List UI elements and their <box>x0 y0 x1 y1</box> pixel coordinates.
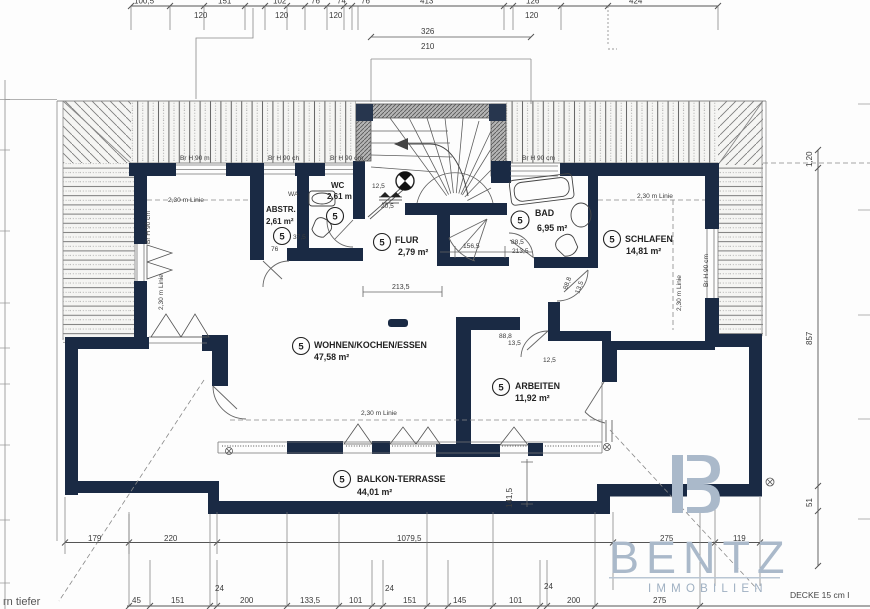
svg-text:5: 5 <box>279 232 285 243</box>
svg-text:179: 179 <box>88 534 102 543</box>
svg-text:FLUR: FLUR <box>395 235 419 245</box>
svg-text:220: 220 <box>164 534 178 543</box>
svg-text:WOHNEN/KOCHEN/ESSEN: WOHNEN/KOCHEN/ESSEN <box>314 340 427 350</box>
svg-text:1,20: 1,20 <box>805 151 814 167</box>
svg-text:141,5: 141,5 <box>505 487 514 508</box>
svg-text:200: 200 <box>240 596 254 605</box>
svg-text:SCHLAFEN: SCHLAFEN <box>625 234 673 244</box>
svg-text:BAD: BAD <box>535 208 554 218</box>
svg-text:BENTZ: BENTZ <box>609 532 792 583</box>
svg-text:2,61 m: 2,61 m <box>327 192 352 201</box>
svg-text:76: 76 <box>361 0 370 6</box>
svg-text:151: 151 <box>403 596 417 605</box>
svg-text:5: 5 <box>332 212 338 223</box>
svg-text:12,5: 12,5 <box>543 357 556 364</box>
svg-text:DECKE 15 cm I: DECKE 15 cm I <box>790 590 850 600</box>
svg-text:74: 74 <box>337 0 346 6</box>
svg-text:ABSTR.: ABSTR. <box>266 205 296 214</box>
svg-text:24: 24 <box>544 582 553 591</box>
svg-text:2,30 m Linie: 2,30 m Linie <box>158 274 165 310</box>
svg-text:102: 102 <box>273 0 287 6</box>
svg-text:88,5: 88,5 <box>511 239 524 246</box>
svg-text:120: 120 <box>329 11 343 20</box>
svg-text:210: 210 <box>421 42 435 51</box>
svg-text:5: 5 <box>609 235 615 246</box>
svg-text:120: 120 <box>275 11 289 20</box>
svg-text:2,30 m Linie: 2,30 m Linie <box>637 193 673 200</box>
svg-text:857: 857 <box>805 331 814 345</box>
svg-text:20,5: 20,5 <box>381 203 394 210</box>
svg-text:51: 51 <box>805 498 814 507</box>
svg-text:44,01 m²: 44,01 m² <box>357 487 392 497</box>
svg-text:5: 5 <box>498 383 504 394</box>
svg-text:100,5: 100,5 <box>134 0 155 6</box>
svg-text:76: 76 <box>271 246 279 253</box>
svg-text:126: 126 <box>526 0 540 6</box>
svg-text:13,5: 13,5 <box>508 340 521 347</box>
svg-text:213,5: 213,5 <box>392 284 410 291</box>
svg-text:Br H 90 cm: Br H 90 cm <box>145 211 152 244</box>
svg-text:326: 326 <box>421 27 435 36</box>
svg-text:120: 120 <box>194 11 208 20</box>
svg-text:WC: WC <box>331 181 345 190</box>
svg-text:133,5: 133,5 <box>300 596 321 605</box>
svg-text:213,5: 213,5 <box>512 248 529 255</box>
svg-text:413: 413 <box>420 0 434 6</box>
svg-text:2,30 m Linie: 2,30 m Linie <box>168 197 204 204</box>
svg-text:BALKON-TERRASSE: BALKON-TERRASSE <box>357 474 446 484</box>
svg-text:Br H 90 ch: Br H 90 ch <box>268 155 299 162</box>
svg-text:5: 5 <box>298 342 304 353</box>
svg-text:2,61 m²: 2,61 m² <box>266 217 294 226</box>
svg-text:120: 120 <box>525 11 539 20</box>
svg-text:37,5: 37,5 <box>293 234 306 241</box>
svg-text:424: 424 <box>629 0 643 6</box>
svg-text:2,30 m Linie: 2,30 m Linie <box>361 410 397 417</box>
svg-text:151: 151 <box>218 0 232 6</box>
svg-text:12,5: 12,5 <box>372 183 385 190</box>
svg-text:76: 76 <box>311 0 320 6</box>
svg-text:IMMOBILIEN: IMMOBILIEN <box>648 583 768 595</box>
svg-text:6,95 m²: 6,95 m² <box>537 223 567 233</box>
svg-text:5: 5 <box>379 238 385 249</box>
svg-text:275: 275 <box>653 596 667 605</box>
svg-text:5: 5 <box>517 216 523 227</box>
svg-text:1079,5: 1079,5 <box>397 534 422 543</box>
svg-text:88,8: 88,8 <box>499 333 512 340</box>
svg-text:Br H 90 cm: Br H 90 cm <box>330 155 363 162</box>
svg-text:200: 200 <box>567 596 581 605</box>
svg-text:WA: WA <box>288 191 299 198</box>
svg-text:2,30 m Linie: 2,30 m Linie <box>676 275 683 311</box>
svg-text:Br H 90 m: Br H 90 m <box>180 155 210 162</box>
svg-text:Br H 90 cm: Br H 90 cm <box>522 155 555 162</box>
svg-text:Br H 90 cm: Br H 90 cm <box>703 254 710 287</box>
svg-text:101: 101 <box>509 596 523 605</box>
svg-text:rn tiefer: rn tiefer <box>3 596 41 608</box>
svg-text:156,5: 156,5 <box>463 243 480 250</box>
svg-text:14,81 m²: 14,81 m² <box>626 246 661 256</box>
svg-text:5: 5 <box>339 475 345 486</box>
svg-text:ARBEITEN: ARBEITEN <box>515 381 560 391</box>
svg-text:11,92 m²: 11,92 m² <box>515 393 550 403</box>
svg-text:24: 24 <box>385 584 394 593</box>
svg-text:151: 151 <box>171 596 185 605</box>
svg-text:45: 45 <box>132 596 141 605</box>
svg-text:101: 101 <box>349 596 363 605</box>
svg-text:47,58 m²: 47,58 m² <box>314 352 349 362</box>
svg-text:145: 145 <box>453 596 467 605</box>
svg-text:24: 24 <box>215 584 224 593</box>
svg-text:2,79 m²: 2,79 m² <box>398 247 428 257</box>
